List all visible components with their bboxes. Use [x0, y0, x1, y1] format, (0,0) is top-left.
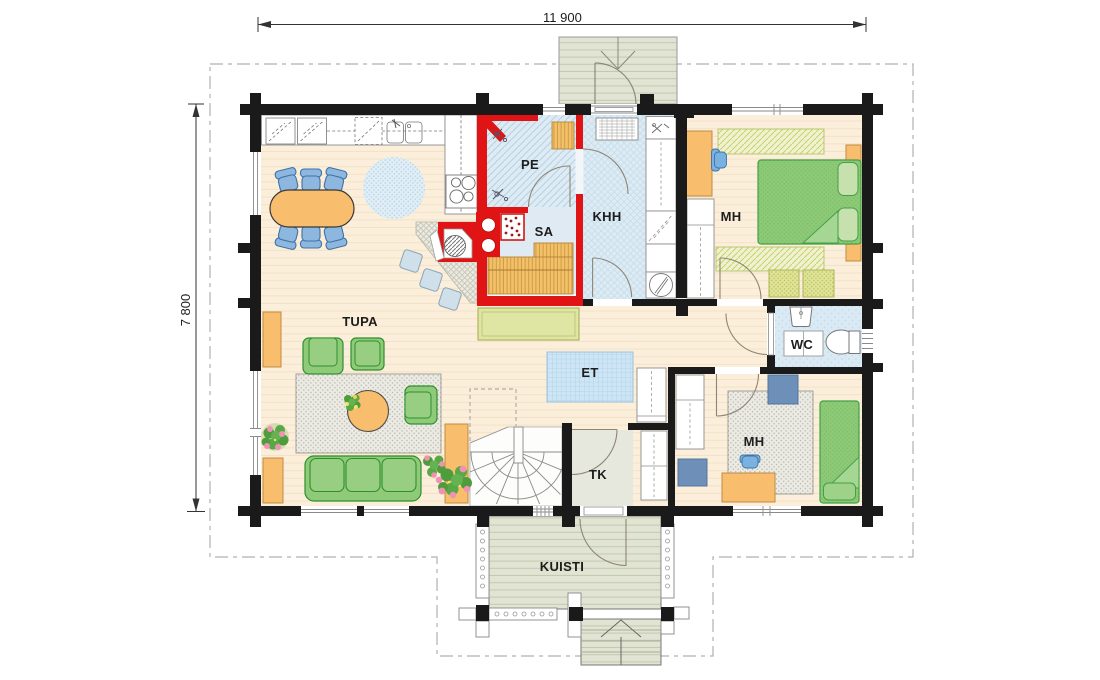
- svg-text:PE: PE: [521, 157, 539, 172]
- svg-text:KHH: KHH: [592, 209, 621, 224]
- svg-text:SA: SA: [535, 224, 554, 239]
- svg-text:WC: WC: [791, 337, 814, 352]
- svg-text:MH: MH: [744, 434, 765, 449]
- svg-text:KUISTI: KUISTI: [540, 559, 584, 574]
- svg-text:11 900: 11 900: [543, 10, 582, 25]
- svg-text:TK: TK: [589, 467, 607, 482]
- svg-text:ET: ET: [581, 365, 598, 380]
- svg-text:MH: MH: [721, 209, 742, 224]
- svg-text:7 800: 7 800: [178, 294, 193, 327]
- svg-text:TUPA: TUPA: [342, 314, 378, 329]
